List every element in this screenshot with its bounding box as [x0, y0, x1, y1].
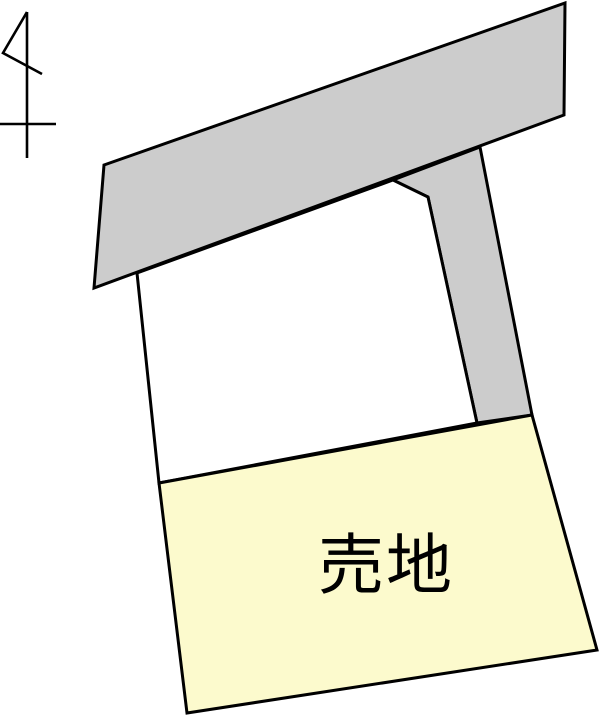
plot-plan-drawing: 売地	[0, 0, 600, 718]
plot-plan-canvas: 売地	[0, 0, 600, 718]
sale-lot-label: 売地	[318, 528, 454, 602]
north-arrow-icon	[0, 12, 56, 158]
north-arrow-flag	[3, 12, 42, 74]
